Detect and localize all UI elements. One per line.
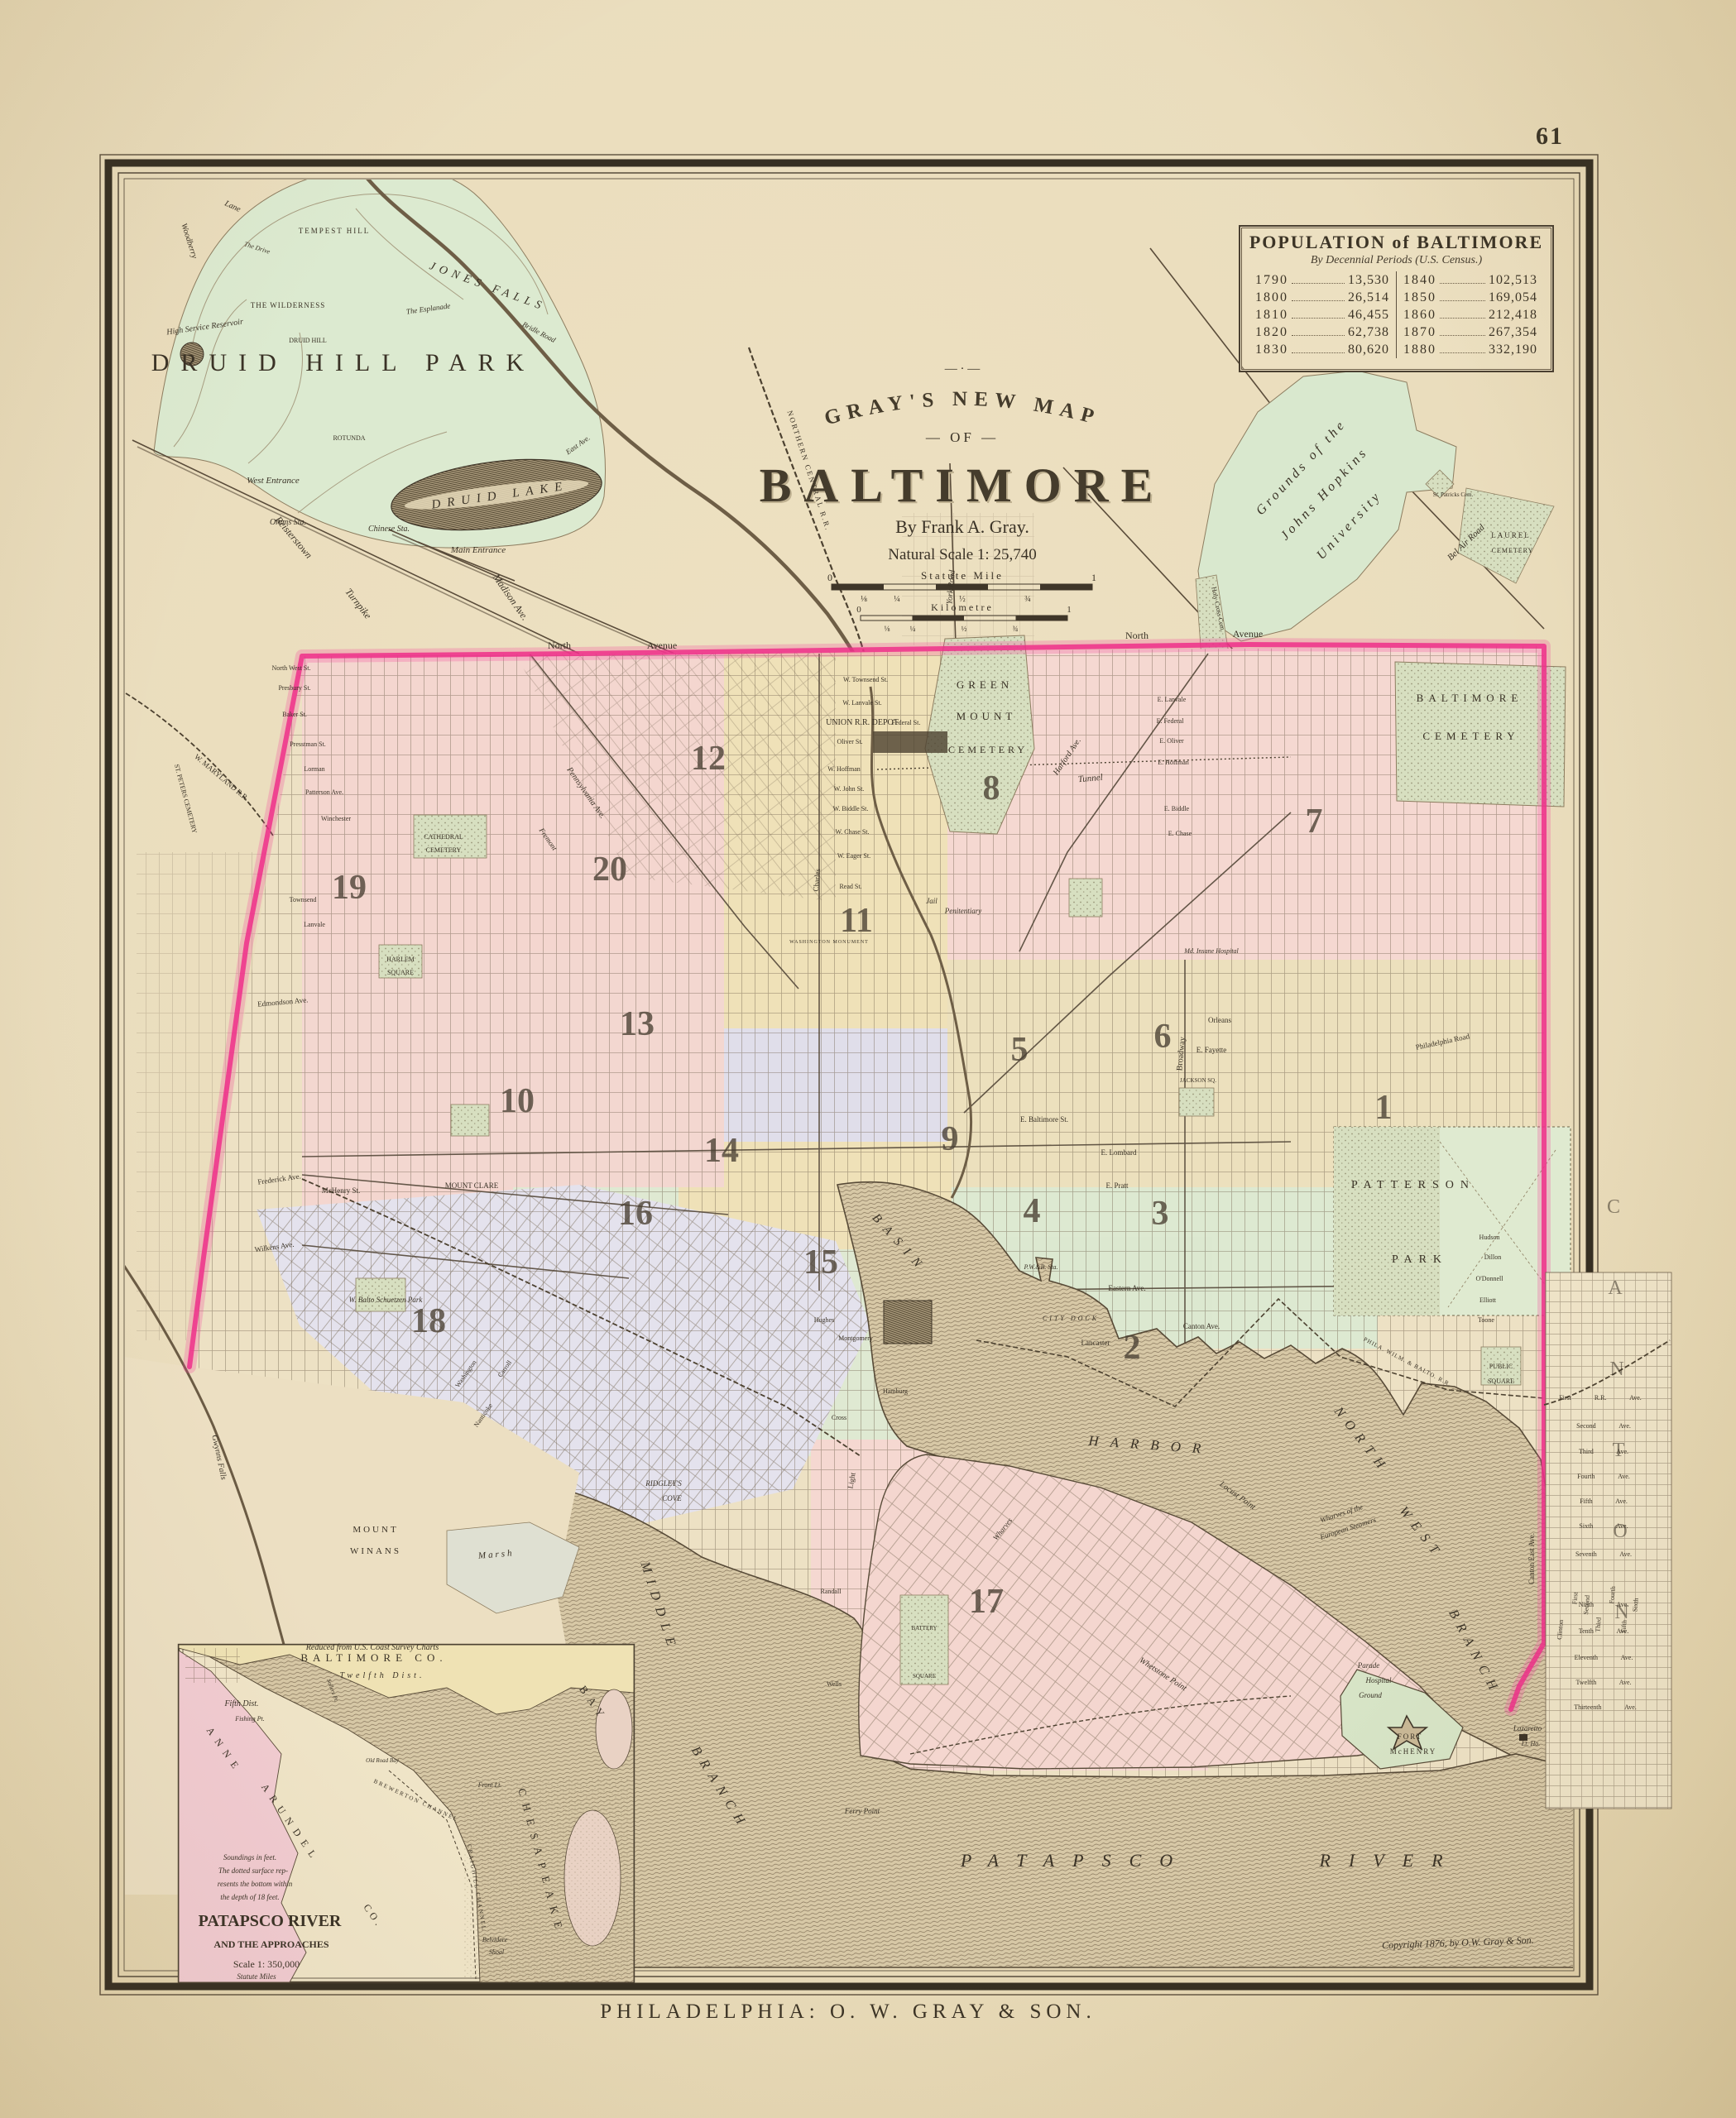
map-label: North West St. [272, 664, 311, 672]
map-label: CEMETERY [1492, 547, 1534, 554]
map-label: MOUNT [352, 1525, 398, 1535]
map-label: E. Lombard [1101, 1148, 1137, 1157]
scalebar-tick: ¼ [894, 595, 900, 604]
ward-number: 11 [840, 902, 873, 940]
map-label: HARLEM [386, 956, 415, 963]
map-label: WINANS [350, 1546, 401, 1556]
map-label: CEMETERY [948, 744, 1028, 755]
map-label: PATAPSCO [960, 1850, 1191, 1871]
map-label: McHENRY [1390, 1747, 1437, 1756]
map-label: Cross [832, 1414, 846, 1421]
map-label: Old Road Bay [366, 1757, 400, 1764]
map-label: Randall [821, 1588, 842, 1595]
map-label: E. Fayette [1196, 1046, 1227, 1054]
map-label: Chinese Sta. [368, 525, 410, 534]
kilometre-bar [861, 616, 1067, 621]
map-label: FORT [1398, 1732, 1422, 1741]
madison-square [1069, 879, 1102, 917]
map-label: Fishing Pt. [234, 1715, 265, 1723]
ward-number: 9 [942, 1120, 959, 1158]
map-label: E. Biddle [1164, 805, 1190, 812]
map-label: Oliver St. [837, 738, 862, 745]
map-label: Eleventh Ave. [1575, 1654, 1633, 1661]
ward-number: 1 [1375, 1089, 1393, 1127]
inset-map [179, 1645, 634, 1988]
scalebar-tick: ⅛ [861, 595, 867, 604]
map-label: AND THE APPROACHES [213, 1938, 328, 1950]
map-label: MOUNT CLARE [445, 1181, 499, 1190]
ward-number: 7 [1306, 803, 1323, 841]
map-label: N [1609, 1358, 1623, 1380]
map-label: MOUNT [957, 710, 1017, 722]
scalebar-tick: ½ [962, 625, 967, 633]
map-label: O'Donnell [1476, 1275, 1504, 1282]
map-label: Canton Ave. [1183, 1322, 1220, 1330]
map-label: LAUREL [1491, 531, 1531, 539]
schuetzen-park [356, 1278, 405, 1311]
map-label: E. Chase [1168, 830, 1192, 837]
map-label: E. Lanvale [1158, 696, 1187, 703]
population-row: 1850169,054 [1403, 289, 1537, 306]
map-label: Soundings in feet. [223, 1853, 276, 1862]
map-label: Second Ave. [1576, 1422, 1631, 1430]
population-row: 1840102,513 [1403, 271, 1537, 289]
statute-mile-bar [832, 584, 1092, 590]
union-depot-block [873, 731, 947, 753]
map-label: Federal St. [892, 719, 921, 726]
ward-number: 14 [704, 1132, 739, 1170]
map-label: Lanvale [304, 921, 325, 928]
map-label: DRUID HILL [289, 337, 327, 344]
map-label: E. Oliver [1159, 737, 1184, 745]
map-label: Presbury St. [278, 684, 310, 692]
map-label: Canton East Ave. [1527, 1533, 1536, 1584]
map-label: DRUID HILL PARK [151, 349, 535, 376]
map-label: North [1125, 630, 1149, 641]
ward-number: 20 [592, 851, 627, 889]
population-row: 180026,514 [1255, 289, 1389, 306]
map-label: Fourth Ave. [1577, 1473, 1630, 1480]
map-label: A [1608, 1277, 1623, 1299]
map-label: Hudson [1479, 1234, 1500, 1241]
scalebar-tick: ¼ [910, 625, 916, 633]
map-label: Woodberry [179, 223, 199, 261]
population-table: POPULATION of BALTIMORE By Decennial Per… [1239, 225, 1554, 372]
map-label: First [1571, 1591, 1579, 1604]
map-label: RIVER [1318, 1850, 1460, 1871]
map-label: Belvidere [482, 1936, 508, 1943]
map-label: CEMETERY [1422, 730, 1519, 742]
map-label: Twelfth Dist. [340, 1671, 425, 1680]
ward-number: 5 [1011, 1031, 1029, 1069]
johns-hopkins-grounds [1198, 371, 1456, 641]
map-label: Fifth Ave. [1580, 1497, 1628, 1505]
map-label: PUBLIC [1489, 1363, 1513, 1370]
map-label: ROTUNDA [333, 434, 365, 442]
map-label: Main Entrance [450, 545, 506, 555]
scalebar-tick: 1 [1091, 572, 1096, 583]
map-label: Parade [1357, 1661, 1380, 1670]
scalebar-tick: 1 [1067, 605, 1072, 615]
title-line1: GRAY'S NEW MAP [822, 388, 1102, 430]
map-label: Toone [1478, 1316, 1494, 1324]
map-label: ST. PETERS CEMETERY [173, 764, 199, 835]
map-label: COVE [662, 1494, 682, 1502]
scalebar-tick: ¾ [1013, 625, 1019, 633]
map-label: SQUARE [387, 969, 414, 976]
scalebar-tick: 0 [856, 605, 861, 615]
map-label: W. MARYLAND R.R. [193, 752, 251, 803]
ward-number: 17 [969, 1583, 1004, 1621]
map-label: Jail [926, 897, 938, 905]
scalebar-tick: ½ [959, 595, 966, 604]
map-label: CATHEDRAL [424, 833, 463, 841]
map-label: PATTERSON [1351, 1179, 1475, 1191]
map-label: Penitentiary [944, 907, 982, 915]
atlas-page: — · — GRAY'S NEW MAP — OF — BALTIMORE By… [0, 0, 1736, 2118]
population-row: 179013,530 [1255, 271, 1389, 289]
map-label: Patterson Ave. [305, 788, 343, 796]
population-table-subtitle: By Decennial Periods (U.S. Census.) [1249, 254, 1544, 267]
ward-number: 4 [1024, 1192, 1041, 1230]
map-label: resents the bottom within [218, 1880, 293, 1888]
map-label: Statute Miles [237, 1972, 276, 1981]
map-label: Ground [1359, 1691, 1382, 1699]
ward-number: 3 [1152, 1195, 1169, 1233]
federal-hill [884, 1301, 932, 1344]
map-label: Avenue [1233, 628, 1263, 640]
map-label: Presstman St. [290, 740, 326, 748]
population-row: 1860212,418 [1403, 306, 1537, 323]
map-label: West Entrance [247, 476, 300, 486]
title-byline: By Frank A. Gray. [895, 516, 1029, 537]
map-label: Read St. [839, 883, 861, 890]
map-label: First R.R. Ave. [1559, 1394, 1642, 1402]
ward-number: 16 [618, 1195, 653, 1233]
map-label: E. Hoffman [1158, 759, 1189, 766]
ward-number: 6 [1154, 1018, 1172, 1056]
map-label: Townsend [290, 896, 317, 903]
map-label: Fifth Dist. [223, 1699, 258, 1708]
map-label: THE WILDERNESS [251, 301, 326, 309]
map-label: Lt. Ho. [1521, 1740, 1540, 1747]
map-label: Avenue [647, 640, 677, 651]
inset-east-shore2 [596, 1689, 632, 1769]
map-label: St. Patricks Cem. [1433, 491, 1474, 498]
map-label: Shoal [489, 1948, 505, 1956]
title-scale: Natural Scale 1: 25,740 [888, 546, 1036, 563]
union-square [451, 1105, 489, 1136]
map-label: SQUARE [913, 1673, 936, 1680]
population-column-1: 179013,530180026,514181046,455182062,738… [1249, 271, 1396, 358]
map-label: Dillon [1484, 1253, 1501, 1261]
map-label: PATAPSCO RIVER [199, 1912, 342, 1930]
map-label: WASHINGTON MONUMENT [789, 940, 869, 945]
ward-number: 12 [691, 740, 726, 778]
map-label: Wells [827, 1680, 842, 1688]
ward-number: 19 [332, 869, 367, 907]
map-label: BALTIMORE CO. [300, 1651, 447, 1664]
map-label: GREEN [957, 678, 1013, 691]
population-row: 1880332,190 [1403, 341, 1537, 358]
map-label: W. Lanvale St. [842, 699, 881, 707]
map-label: Baker St. [282, 711, 307, 718]
map-label: Ferry Point [844, 1807, 880, 1815]
map-label: W. Townsend St. [843, 676, 888, 683]
ward-number: 18 [411, 1302, 446, 1340]
scalebar-tick: ⅛ [885, 625, 890, 633]
map-label: W. Hoffman [827, 765, 861, 773]
publisher-imprint: PHILADELPHIA: O. W. GRAY & SON. [0, 2001, 1696, 2024]
map-label: PARK [1392, 1253, 1448, 1266]
map-label: T [1613, 1440, 1625, 1461]
map-label: TEMPEST HILL [299, 227, 371, 235]
population-table-title: POPULATION of BALTIMORE [1249, 232, 1544, 253]
map-label: Seventh Ave. [1575, 1550, 1632, 1558]
map-label: the depth of 18 feet. [220, 1893, 279, 1901]
map-label: JACKSON SQ. [1180, 1077, 1216, 1084]
map-label: The dotted surface rep- [218, 1866, 288, 1875]
battery-square [900, 1595, 948, 1684]
map-label: N [1614, 1602, 1628, 1623]
map-label: Hospital [1364, 1676, 1392, 1684]
map-label: W. Chase St. [835, 828, 869, 836]
map-label: C [1607, 1196, 1620, 1218]
map-label: O [1613, 1521, 1627, 1542]
map-label: CITY DOCK [1043, 1315, 1099, 1322]
map-label: E. Pratt [1106, 1181, 1129, 1190]
map-label: E. Federal [1157, 717, 1185, 725]
map-label: Third [1594, 1617, 1603, 1632]
map-label: SQUARE [1488, 1378, 1514, 1385]
map-label: Thirteenth Ave. [1574, 1704, 1637, 1711]
map-label: Turnpike [343, 586, 375, 621]
map-label: Scale 1: 350,000 [233, 1958, 300, 1970]
title-deco: — · — [944, 362, 981, 376]
map-label: Lancaster [1081, 1339, 1110, 1347]
map-label: North [548, 640, 571, 651]
map-label: RIDGLEY'S [645, 1479, 682, 1488]
population-row: 182062,738 [1255, 323, 1389, 341]
population-row: 181046,455 [1255, 306, 1389, 323]
map-label: UNION R.R. DEPOT [826, 718, 899, 727]
patterson-park [1334, 1127, 1571, 1315]
map-label: Lane [223, 199, 242, 214]
ward-number: 10 [500, 1082, 535, 1120]
population-column-2: 1840102,5131850169,0541860212,4181870267… [1396, 271, 1544, 358]
map-label: W. Balto Schuetzen Park [349, 1296, 424, 1304]
map-label: W. Eager St. [837, 852, 870, 860]
title-line2: — OF — [925, 429, 999, 445]
map-label: W. Biddle St. [833, 805, 869, 812]
map-label: Hamburg [883, 1387, 908, 1395]
ward-number: 13 [620, 1005, 655, 1043]
map-label: McHenry St. [322, 1186, 361, 1195]
map-label: BALTIMORE [1417, 692, 1523, 704]
map-label: Hughes [814, 1316, 834, 1324]
ward-number: 15 [803, 1243, 838, 1282]
scalebar-tick: ¾ [1024, 595, 1031, 604]
mile-bar-label: Statute Mile [921, 569, 1004, 582]
map-label: CEMETERY [426, 846, 462, 854]
scalebar-tick: 0 [827, 572, 832, 583]
map-label: Md. Insane Hospital [1183, 947, 1239, 955]
map-label: Winchester [321, 815, 351, 822]
population-row: 183080,620 [1255, 341, 1389, 358]
page-number: 61 [1536, 122, 1564, 151]
map-label: BATTERY [911, 1625, 937, 1632]
map-label: Orleans [1208, 1016, 1231, 1024]
ward-number: 2 [1124, 1329, 1141, 1367]
map-label: Lorman [304, 765, 324, 773]
map-label: Lazaretto [1513, 1724, 1542, 1732]
map-label: Montgomery [838, 1335, 873, 1342]
population-row: 1870267,354 [1403, 323, 1537, 341]
map-label: Front Lt. [477, 1781, 502, 1789]
map-label: Elliott [1479, 1296, 1497, 1304]
ward-number: 8 [983, 769, 1000, 807]
inset-baltimore-city [185, 1648, 240, 1683]
map-label: E. Baltimore St. [1020, 1115, 1068, 1124]
map-label: P.W.&B. Sta. [1023, 1263, 1057, 1271]
canton-strip [1544, 1272, 1671, 1809]
map-label: Eastern Ave. [1108, 1284, 1145, 1292]
map-label: Twelfth Ave. [1575, 1679, 1631, 1686]
jackson-square [1179, 1088, 1214, 1116]
map-label: W. John St. [834, 785, 865, 793]
map-label: Sixth [1631, 1598, 1639, 1612]
